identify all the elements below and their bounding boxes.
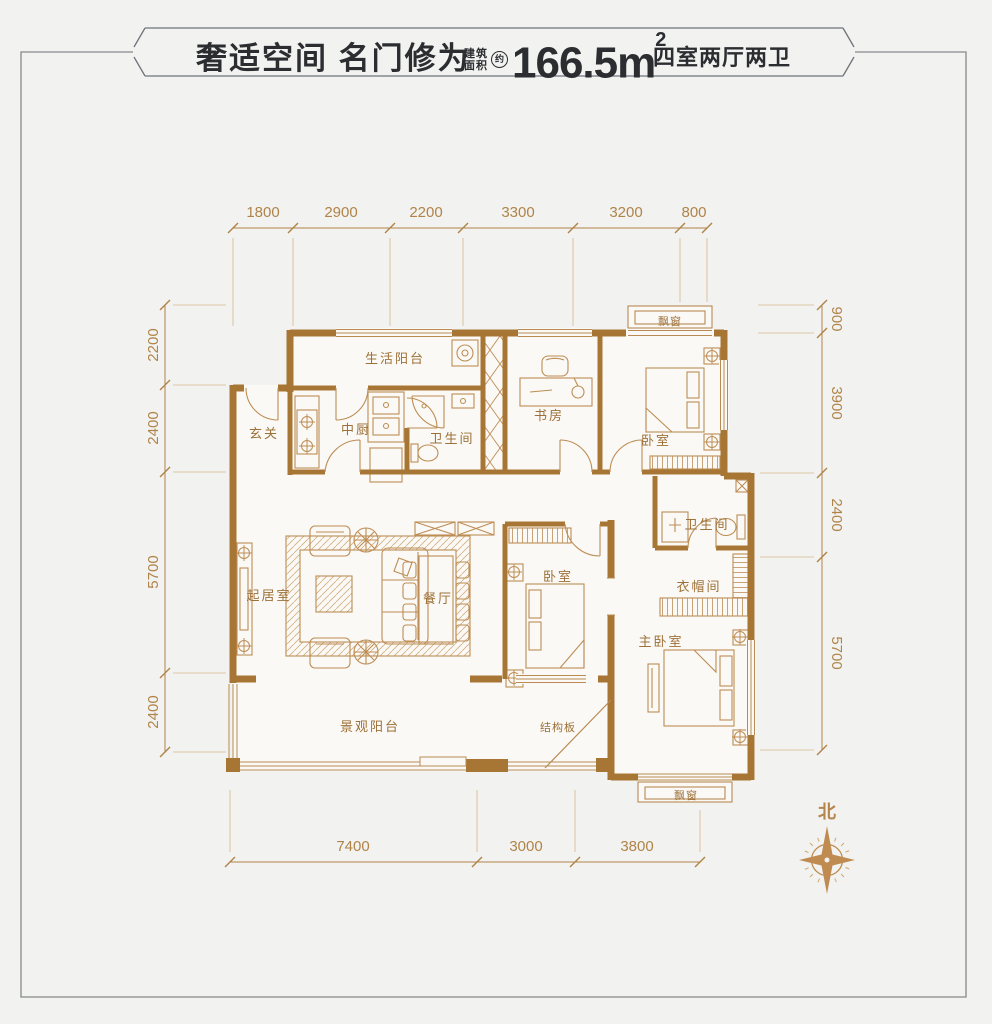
room-label-dining-room: 餐厅 (423, 591, 453, 606)
area-prefix-top: 建筑 (464, 48, 488, 60)
area-value: 166.5m2 (512, 34, 665, 86)
room-label-bathroom2: 卫生间 (684, 517, 729, 532)
dim-right-4: 5700 (828, 636, 845, 669)
dim-right-2: 3900 (828, 386, 845, 419)
dim-top-1: 1800 (246, 204, 279, 221)
header: 奢适空间 名门修为 建筑 面积 约 166.5m2 四室两厅两卫 (0, 0, 992, 110)
dimension-left: 2200 2400 5700 2400 (145, 300, 226, 757)
dimension-right: 900 3900 2400 5700 (758, 300, 845, 755)
dim-top-5: 3200 (609, 204, 642, 221)
floorplan-drawing: 玄关 生活阳台 中厨 卫生间 书房 卧室 飘窗 起居室 餐厅 卧室 卫生间 衣帽… (0, 0, 992, 1024)
room-label-service-balcony: 生活阳台 (365, 351, 425, 366)
dimension-bottom: 7400 3000 3800 (225, 790, 705, 867)
room-label-living-room: 起居室 (246, 588, 291, 603)
area-prefix-label: 建筑 面积 (464, 48, 488, 72)
dim-top-6: 800 (681, 204, 706, 221)
room-label-bedroom2: 卧室 (543, 569, 573, 584)
room-label-study: 书房 (534, 408, 564, 423)
dim-right-3: 2400 (828, 498, 845, 531)
area-prefix-bottom: 面积 (464, 60, 488, 72)
compass: 北 (799, 802, 855, 894)
dim-right-1: 900 (828, 306, 845, 331)
dim-left-1: 2200 (145, 328, 162, 361)
room-label-bay-window-bottom: 飘窗 (674, 788, 698, 802)
dim-top-4: 3300 (501, 204, 534, 221)
compass-center-dot (825, 858, 830, 863)
room-label-bathroom1: 卫生间 (429, 431, 474, 446)
room-label-entry: 玄关 (249, 426, 279, 441)
room-label-kitchen: 中厨 (341, 422, 371, 437)
dim-top-2: 2900 (324, 204, 357, 221)
room-label-cloakroom: 衣帽间 (676, 579, 721, 594)
dim-left-4: 2400 (145, 695, 162, 728)
room-label-view-balcony: 景观阳台 (340, 719, 400, 734)
page-title: 奢适空间 名门修为 (196, 33, 471, 78)
dim-bottom-2: 3000 (509, 838, 542, 855)
dim-left-3: 5700 (145, 555, 162, 588)
dim-top-3: 2200 (409, 204, 442, 221)
dim-bottom-1: 7400 (336, 838, 369, 855)
area-number: 166.5 (512, 39, 617, 88)
layout-summary: 四室两厅两卫 (653, 40, 791, 72)
room-label-structural-slab: 结构板 (540, 720, 576, 734)
area-figure: 建筑 面积 约 166.5m2 (464, 34, 665, 86)
compass-north-label: 北 (818, 802, 836, 822)
dim-left-2: 2400 (145, 411, 162, 444)
room-label-master-bedroom: 主卧室 (638, 634, 683, 649)
shaft-duct (484, 334, 504, 470)
approx-badge: 约 (491, 51, 508, 68)
room-label-bay-window-top: 飘窗 (658, 314, 682, 328)
room-label-bedroom1: 卧室 (641, 433, 671, 448)
area-unit: m (617, 39, 655, 88)
dim-bottom-3: 3800 (620, 838, 653, 855)
floorplan-page: 玄关 生活阳台 中厨 卫生间 书房 卧室 飘窗 起居室 餐厅 卧室 卫生间 衣帽… (0, 0, 992, 1024)
